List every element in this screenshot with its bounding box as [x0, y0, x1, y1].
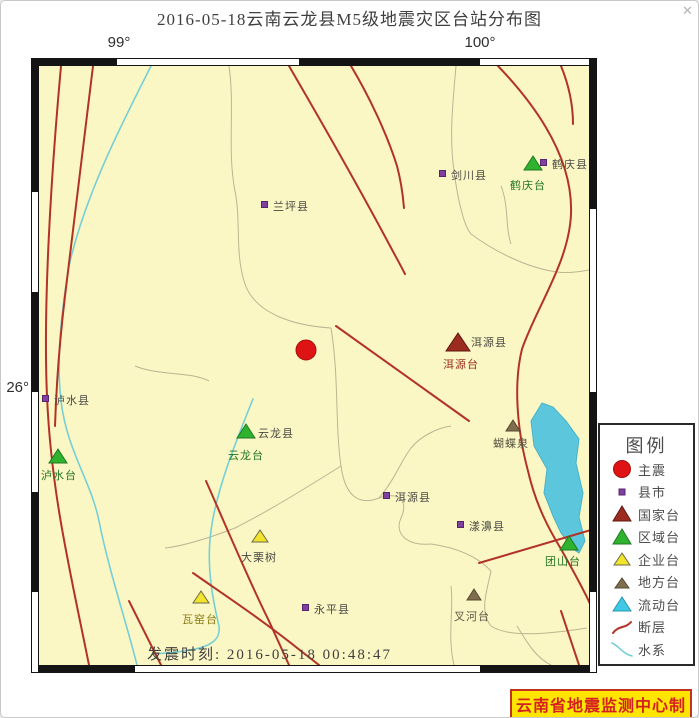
marker-yunlong-station: 云龙县 云龙台 — [236, 423, 256, 444]
legend-item-river: 水系 — [600, 638, 693, 661]
legend-label: 流动台 — [638, 595, 680, 614]
legend-box: 图例 主震 县市 国家台 区域台 企业台 — [598, 423, 695, 666]
map-frame-bottom — [31, 665, 597, 673]
event-time-text: 发震时刻: 2016-05-18 00:48:47 — [147, 643, 392, 664]
marker-label: 鹤庆县 — [552, 156, 588, 172]
legend-item-local-station: 地方台 — [600, 571, 693, 594]
legend-item-county: 县市 — [600, 481, 693, 504]
marker-chahe-station: 叉河台 — [466, 588, 482, 606]
marker-label: 剑川县 — [451, 167, 487, 183]
marker-sublabel: 云龙台 — [228, 447, 264, 463]
mainshock-circle-icon — [609, 459, 635, 479]
credit-badge: 云南省地震监测中心制 — [510, 689, 692, 718]
marker-label: 鹤庆台 — [510, 177, 546, 193]
legend-item-enterprise-station: 企业台 — [600, 548, 693, 571]
map-frame-left — [31, 58, 39, 673]
marker-label: 泸水台 — [41, 467, 77, 483]
marker-heqing-station: 鹤庆台 — [523, 155, 543, 176]
mainshock-circle-icon — [295, 339, 317, 361]
lake-polygon — [531, 403, 585, 553]
marker-label: 云龙县 — [258, 425, 294, 441]
map-frame-right — [589, 58, 597, 673]
regional-station-triangle-icon — [523, 155, 543, 171]
marker-label: 团山台 — [545, 553, 581, 569]
page-title: 2016-05-18云南云龙县M5级地震灾区台站分布图 — [1, 5, 698, 30]
lon-label-99: 99° — [97, 34, 141, 51]
county-square-icon — [457, 521, 464, 528]
marker-wayao-station: 瓦窑台 — [192, 590, 210, 609]
regional-station-triangle-icon — [48, 448, 68, 464]
close-icon[interactable]: ✕ — [682, 3, 693, 19]
county-square-icon — [261, 201, 268, 208]
legend-label: 断层 — [638, 617, 666, 636]
marker-label: 漾濞县 — [469, 518, 505, 534]
county-square-icon — [609, 482, 635, 502]
marker-dalishu-station: 大栗树 — [251, 529, 269, 548]
county-square-icon — [42, 395, 49, 402]
lon-label-100: 100° — [453, 34, 507, 51]
marker-eryuan-national-station: 洱源县 洱源台 — [445, 332, 471, 357]
marker-label: 蝴蝶泉 — [493, 435, 529, 451]
marker-label: 洱源县 — [395, 489, 431, 505]
legend-item-fault: 断层 — [600, 616, 693, 639]
legend-label: 区域台 — [638, 527, 680, 546]
map-frame-top — [31, 58, 597, 66]
river-lines — [59, 66, 253, 665]
marker-label: 大栗树 — [241, 549, 277, 565]
marker-label: 瓦窑台 — [182, 611, 218, 627]
legend-item-regional-station: 区域台 — [600, 526, 693, 549]
map-canvas: 剑川县 鹤庆县 鹤庆台 兰坪县 洱源县 洱源台 泸水县 — [39, 66, 589, 665]
mobile-station-triangle-icon — [609, 594, 635, 614]
legend-title: 图例 — [600, 432, 693, 458]
county-square-icon — [302, 604, 309, 611]
legend-label: 企业台 — [638, 550, 680, 569]
fault-line-icon — [609, 617, 635, 637]
legend-label: 国家台 — [638, 505, 680, 524]
county-square-icon — [439, 170, 446, 177]
lat-label-26: 26° — [1, 379, 29, 396]
marker-lanping-county: 兰坪县 — [261, 201, 268, 208]
marker-mainshock — [295, 339, 317, 366]
marker-yangbi-county: 漾濞县 — [457, 521, 464, 528]
national-station-triangle-icon — [445, 332, 471, 352]
enterprise-station-triangle-icon — [609, 549, 635, 569]
map-window: 2016-05-18云南云龙县M5级地震灾区台站分布图 ✕ 99° 100° 2… — [0, 0, 699, 718]
marker-label: 叉河台 — [454, 608, 490, 624]
local-station-triangle-icon — [609, 572, 635, 592]
local-station-triangle-icon — [466, 588, 482, 601]
marker-tuanshan-station: 团山台 — [559, 535, 579, 556]
legend-label: 县市 — [638, 482, 666, 501]
county-square-icon — [383, 492, 390, 499]
national-station-triangle-icon — [609, 504, 635, 524]
marker-hudiequan-station: 蝴蝶泉 — [505, 419, 521, 437]
enterprise-station-triangle-icon — [251, 529, 269, 543]
marker-label: 兰坪县 — [273, 198, 309, 214]
regional-station-triangle-icon — [236, 423, 256, 439]
marker-label: 永平县 — [314, 601, 350, 617]
marker-eryuan-county: 洱源县 — [383, 492, 390, 499]
marker-lushui-station: 泸水台 — [48, 448, 68, 469]
marker-jianchuan-county: 剑川县 — [439, 170, 446, 177]
legend-item-national-station: 国家台 — [600, 503, 693, 526]
county-boundaries — [135, 66, 589, 665]
fault-lines — [46, 66, 589, 665]
legend-item-mobile-station: 流动台 — [600, 593, 693, 616]
legend-label: 主震 — [638, 460, 666, 479]
river-line-icon — [609, 639, 635, 659]
legend-label: 地方台 — [638, 572, 680, 591]
enterprise-station-triangle-icon — [192, 590, 210, 604]
marker-lushui-county: 泸水县 — [42, 395, 49, 402]
marker-label: 洱源县 — [471, 334, 507, 350]
local-station-triangle-icon — [505, 419, 521, 432]
marker-sublabel: 洱源台 — [443, 356, 479, 372]
legend-label: 水系 — [638, 640, 666, 659]
regional-station-triangle-icon — [559, 535, 579, 551]
marker-yongping-county: 永平县 — [302, 604, 309, 611]
regional-station-triangle-icon — [609, 527, 635, 547]
marker-label: 泸水县 — [54, 392, 90, 408]
legend-item-mainshock: 主震 — [600, 458, 693, 481]
